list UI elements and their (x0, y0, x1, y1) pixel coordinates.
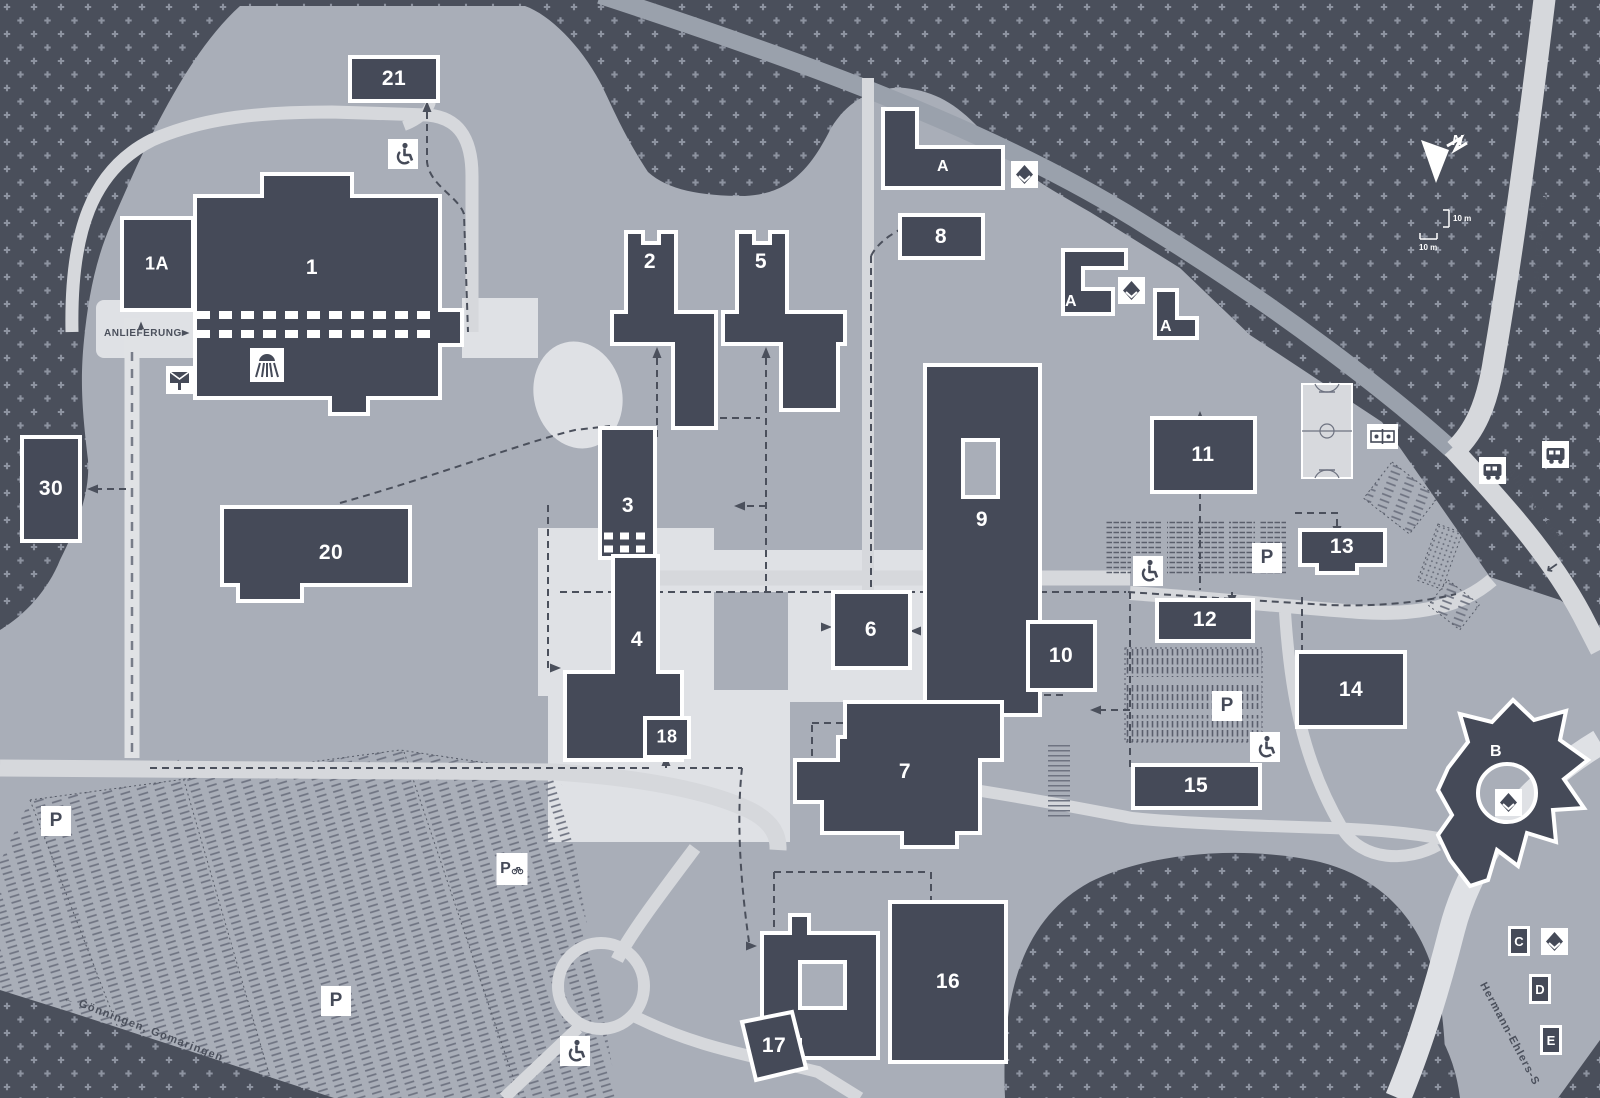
scale-label-2: 10 m (1419, 243, 1437, 252)
building-label-18: 18 (656, 727, 677, 748)
building-label-13: 13 (1330, 535, 1354, 559)
building-label-21: 21 (382, 67, 406, 91)
building-label-17: 17 (762, 1034, 786, 1058)
building-label-30: 30 (39, 477, 63, 501)
wheelchair-icon (1133, 556, 1163, 586)
building-9 (925, 365, 1040, 715)
building-label-11: 11 (1191, 443, 1214, 467)
building-label-8: 8 (935, 225, 947, 249)
scale-label-1: 10 m (1453, 214, 1471, 223)
marker-c: C (1508, 926, 1530, 956)
north-label: N (1452, 132, 1463, 149)
parking-letter: P (500, 860, 511, 878)
wheelchair-icon (1250, 732, 1280, 762)
bicycle-icon (512, 863, 524, 875)
building-label-a: A (1065, 293, 1077, 311)
building-label-9: 9 (976, 508, 988, 532)
building-label-7: 7 (899, 760, 911, 784)
mailbox-icon (166, 366, 193, 394)
building-20 (222, 507, 410, 601)
marker-e: E (1540, 1025, 1562, 1055)
building-label-1a: 1A (145, 254, 169, 275)
parking-sign: P (1252, 543, 1282, 573)
parking-sign: P (41, 806, 71, 836)
auditorium-icon (250, 348, 284, 382)
artwork-icon (1118, 277, 1145, 304)
building-label-a: A (1160, 318, 1172, 336)
bus-icon (1479, 457, 1506, 484)
basketball-court (1302, 384, 1352, 478)
building-label-15: 15 (1184, 774, 1208, 798)
anlieferung-label: ANLIEFERUNG (104, 328, 182, 339)
building-label-5: 5 (755, 250, 767, 274)
parking-sign: P (321, 986, 351, 1016)
building-label-a: A (937, 158, 949, 176)
building-label-10: 10 (1049, 644, 1073, 668)
building-label-12: 12 (1193, 608, 1217, 632)
building-label-2: 2 (644, 250, 656, 274)
marker-d: D (1529, 974, 1551, 1004)
table-tennis-icon (1367, 424, 1398, 449)
artwork-icon (1541, 928, 1568, 955)
campus-map-svg (0, 0, 1600, 1098)
building-1 (195, 174, 462, 414)
wheelchair-icon (560, 1036, 590, 1066)
building-label-14: 14 (1339, 678, 1363, 702)
wheelchair-icon (388, 139, 418, 169)
building-label-16: 16 (936, 970, 960, 994)
building-label-b: B (1490, 743, 1502, 761)
parking-sign: P (1212, 691, 1242, 721)
building-label-6: 6 (865, 618, 877, 642)
bicycle-parking-sign: P (497, 853, 528, 885)
building-label-1: 1 (306, 256, 318, 280)
bus-icon (1542, 441, 1569, 468)
building-label-4: 4 (631, 628, 643, 652)
campus-map: 1 1A 2 3 4 5 6 7 8 9 10 11 12 13 14 15 1… (0, 0, 1600, 1098)
building-label-20: 20 (319, 541, 343, 565)
artwork-icon (1011, 161, 1038, 188)
building-label-3: 3 (622, 494, 634, 518)
artwork-icon (1495, 789, 1522, 816)
